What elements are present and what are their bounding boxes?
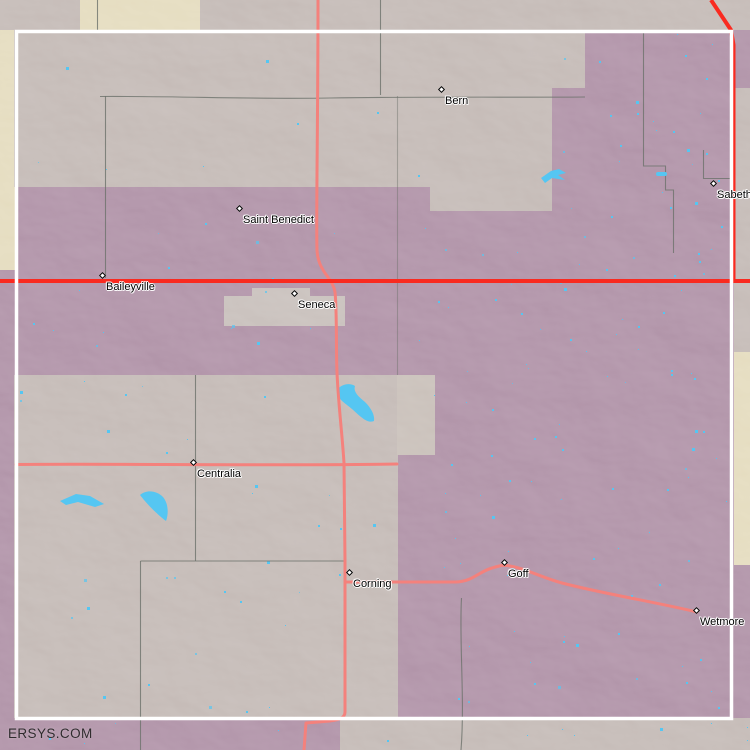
map-vector-layer	[0, 0, 750, 750]
town-label: Seneca	[298, 299, 335, 311]
lake	[60, 494, 104, 507]
map-viewport[interactable]: BernSabethaSaint BenedictBaileyvilleSene…	[0, 0, 750, 750]
county-line-east	[644, 30, 674, 253]
roads	[0, 0, 750, 750]
stream	[541, 169, 566, 183]
road-north-south	[304, 0, 345, 750]
map-frame	[17, 32, 732, 719]
lake	[140, 491, 168, 521]
county-line-north	[100, 96, 585, 98]
town-label: Saint Benedict	[243, 214, 314, 226]
water-bodies	[60, 169, 667, 521]
road-centralia	[16, 464, 397, 465]
town-label: Sabetha	[717, 189, 750, 201]
boundary-segment	[461, 598, 463, 750]
boundary-lines	[98, 0, 735, 750]
lake	[337, 384, 374, 421]
town-label: Goff	[508, 568, 529, 580]
town-label: Centralia	[197, 468, 241, 480]
stream	[656, 172, 667, 176]
town-label: Wetmore	[700, 616, 744, 628]
watermark-text: ERSYS.COM	[8, 726, 93, 741]
town-label: Corning	[353, 578, 392, 590]
town-label: Baileyville	[106, 281, 155, 293]
town-label: Bern	[445, 95, 468, 107]
boundary-segment	[704, 150, 735, 179]
